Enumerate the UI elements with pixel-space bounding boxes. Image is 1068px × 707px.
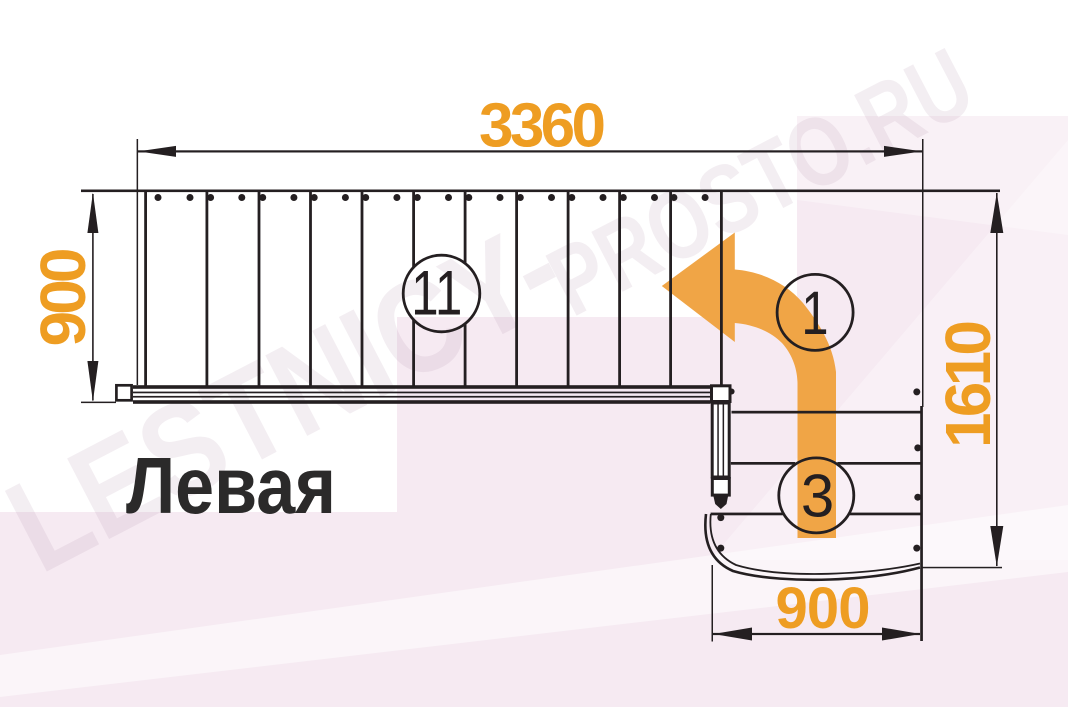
svg-text:1610: 1610 [932,320,1004,448]
svg-text:900: 900 [27,248,99,347]
svg-text:900: 900 [776,576,871,641]
svg-text:3: 3 [801,463,834,530]
svg-text:1: 1 [801,279,828,347]
svg-text:3360: 3360 [479,92,606,161]
svg-text:11: 11 [411,258,462,328]
svg-text:Левая: Левая [126,441,336,530]
